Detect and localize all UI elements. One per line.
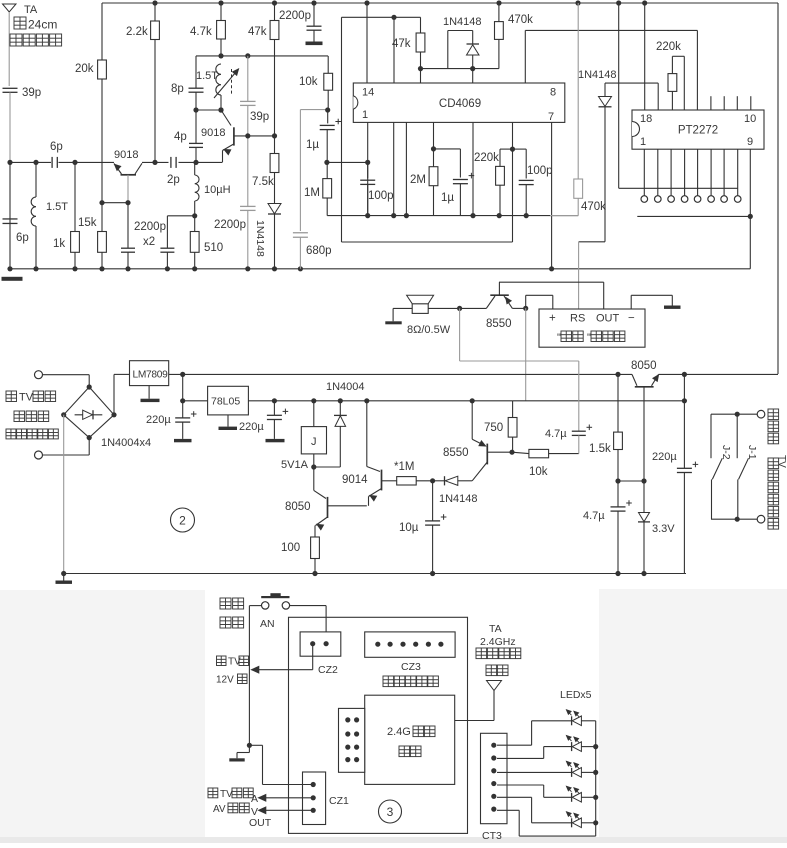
svg-text:AN: AN bbox=[260, 618, 275, 630]
svg-text:10: 10 bbox=[744, 113, 756, 125]
svg-text:39p: 39p bbox=[250, 111, 269, 123]
svg-text:8550: 8550 bbox=[486, 318, 512, 330]
svg-text:2.2k: 2.2k bbox=[126, 26, 148, 38]
svg-text:510: 510 bbox=[204, 242, 223, 254]
svg-text:2M: 2M bbox=[410, 174, 426, 186]
svg-text:LEDx5: LEDx5 bbox=[560, 689, 592, 701]
svg-text:220k: 220k bbox=[474, 152, 499, 164]
svg-text:": " bbox=[557, 332, 561, 344]
svg-text:TV: TV bbox=[19, 392, 34, 404]
svg-text:15k: 15k bbox=[78, 217, 97, 229]
svg-text:1N4148: 1N4148 bbox=[578, 69, 617, 81]
svg-text:100: 100 bbox=[281, 542, 300, 554]
svg-text:8050: 8050 bbox=[285, 501, 311, 513]
svg-text:3.3V: 3.3V bbox=[652, 523, 675, 535]
svg-text:OUT: OUT bbox=[249, 817, 272, 829]
svg-text:CZ1: CZ1 bbox=[329, 795, 349, 807]
svg-text:10µ: 10µ bbox=[399, 522, 419, 534]
svg-text:1k: 1k bbox=[53, 238, 65, 250]
svg-text:470k: 470k bbox=[508, 14, 533, 26]
svg-text:2200p: 2200p bbox=[279, 10, 311, 22]
svg-text:*1M: *1M bbox=[394, 461, 414, 473]
svg-text:47k: 47k bbox=[248, 26, 267, 38]
svg-text:220µ: 220µ bbox=[239, 421, 264, 433]
svg-text:CZ3: CZ3 bbox=[401, 661, 421, 673]
svg-text:10k: 10k bbox=[299, 76, 318, 88]
svg-text:−: − bbox=[628, 313, 635, 325]
svg-text:4.7µ: 4.7µ bbox=[583, 510, 605, 522]
svg-text:9: 9 bbox=[747, 136, 753, 148]
svg-text:5V1A: 5V1A bbox=[281, 459, 309, 471]
svg-text:2p: 2p bbox=[167, 174, 180, 186]
svg-text:1µ: 1µ bbox=[441, 192, 454, 204]
svg-text:1: 1 bbox=[362, 109, 368, 121]
svg-text:6p: 6p bbox=[50, 141, 63, 153]
svg-text:220µ: 220µ bbox=[146, 414, 171, 426]
svg-text:24cm: 24cm bbox=[28, 18, 57, 32]
svg-text:CZ2: CZ2 bbox=[318, 664, 338, 676]
svg-text:1N4148: 1N4148 bbox=[443, 16, 482, 28]
svg-text:TA: TA bbox=[24, 4, 38, 16]
svg-text:": " bbox=[587, 332, 591, 344]
svg-text:10k: 10k bbox=[529, 466, 548, 478]
svg-text:4p: 4p bbox=[174, 131, 187, 143]
svg-text:8p: 8p bbox=[171, 83, 184, 95]
svg-text:LM7809: LM7809 bbox=[133, 370, 169, 381]
svg-text:OUT: OUT bbox=[596, 313, 620, 325]
svg-text:1N4004: 1N4004 bbox=[326, 381, 365, 393]
svg-text:4.7µ: 4.7µ bbox=[545, 428, 567, 440]
svg-text:12V: 12V bbox=[216, 675, 234, 686]
svg-text:1N4004x4: 1N4004x4 bbox=[101, 437, 151, 449]
svg-text:220k: 220k bbox=[656, 41, 681, 53]
svg-text:9014: 9014 bbox=[342, 474, 368, 486]
svg-text:PT2272: PT2272 bbox=[678, 125, 718, 137]
svg-text:680p: 680p bbox=[306, 245, 332, 257]
svg-text:1M: 1M bbox=[304, 187, 320, 199]
svg-text:3: 3 bbox=[387, 805, 394, 819]
svg-text:x2: x2 bbox=[143, 236, 155, 248]
svg-text:8Ω/0.5W: 8Ω/0.5W bbox=[407, 324, 451, 336]
svg-text:2200p: 2200p bbox=[214, 219, 246, 231]
svg-text:7: 7 bbox=[548, 111, 554, 123]
svg-text:6p: 6p bbox=[16, 232, 29, 244]
svg-text:78L05: 78L05 bbox=[211, 396, 240, 408]
svg-text:8050: 8050 bbox=[631, 360, 657, 372]
svg-text:14: 14 bbox=[362, 87, 374, 99]
svg-text:TA: TA bbox=[489, 623, 502, 635]
svg-text:2.4GHz: 2.4GHz bbox=[480, 636, 516, 648]
svg-text:1.5T: 1.5T bbox=[46, 201, 68, 213]
svg-text:2: 2 bbox=[179, 514, 186, 528]
svg-text:AV: AV bbox=[213, 804, 226, 815]
svg-text:7.5k: 7.5k bbox=[252, 176, 274, 188]
svg-text:100p: 100p bbox=[368, 190, 394, 202]
svg-text:9018: 9018 bbox=[201, 127, 225, 139]
svg-text:1: 1 bbox=[640, 136, 646, 148]
svg-text:220µ: 220µ bbox=[652, 451, 677, 463]
svg-text:J-1: J-1 bbox=[746, 445, 758, 460]
svg-text:CD4069: CD4069 bbox=[439, 98, 481, 110]
svg-text:39p: 39p bbox=[22, 87, 41, 99]
svg-text:2.4G: 2.4G bbox=[387, 726, 411, 738]
svg-text:J: J bbox=[311, 436, 317, 448]
svg-text:10µH: 10µH bbox=[204, 184, 231, 196]
svg-text:8550: 8550 bbox=[443, 447, 469, 459]
svg-text:8: 8 bbox=[550, 87, 556, 99]
svg-text:750: 750 bbox=[484, 422, 503, 434]
svg-text:1.5T: 1.5T bbox=[196, 70, 218, 82]
svg-text:18: 18 bbox=[640, 113, 652, 125]
svg-text:1N4148: 1N4148 bbox=[254, 220, 266, 257]
svg-text:9018: 9018 bbox=[114, 149, 138, 161]
svg-text:470k: 470k bbox=[581, 201, 606, 213]
svg-text:47k: 47k bbox=[392, 38, 411, 50]
svg-text:100p: 100p bbox=[527, 165, 553, 177]
svg-text:1N4148: 1N4148 bbox=[439, 493, 478, 505]
svg-text:1.5k: 1.5k bbox=[589, 443, 611, 455]
svg-text:20k: 20k bbox=[75, 63, 94, 75]
svg-text:1µ: 1µ bbox=[306, 139, 319, 151]
svg-text:J-2: J-2 bbox=[720, 445, 732, 460]
svg-text:TV: TV bbox=[220, 789, 233, 800]
svg-text:RS: RS bbox=[570, 313, 585, 325]
svg-text:4.7k: 4.7k bbox=[190, 26, 212, 38]
svg-text:2200p: 2200p bbox=[134, 221, 166, 233]
svg-text:+: + bbox=[549, 313, 556, 325]
svg-text:CT3: CT3 bbox=[482, 830, 502, 842]
